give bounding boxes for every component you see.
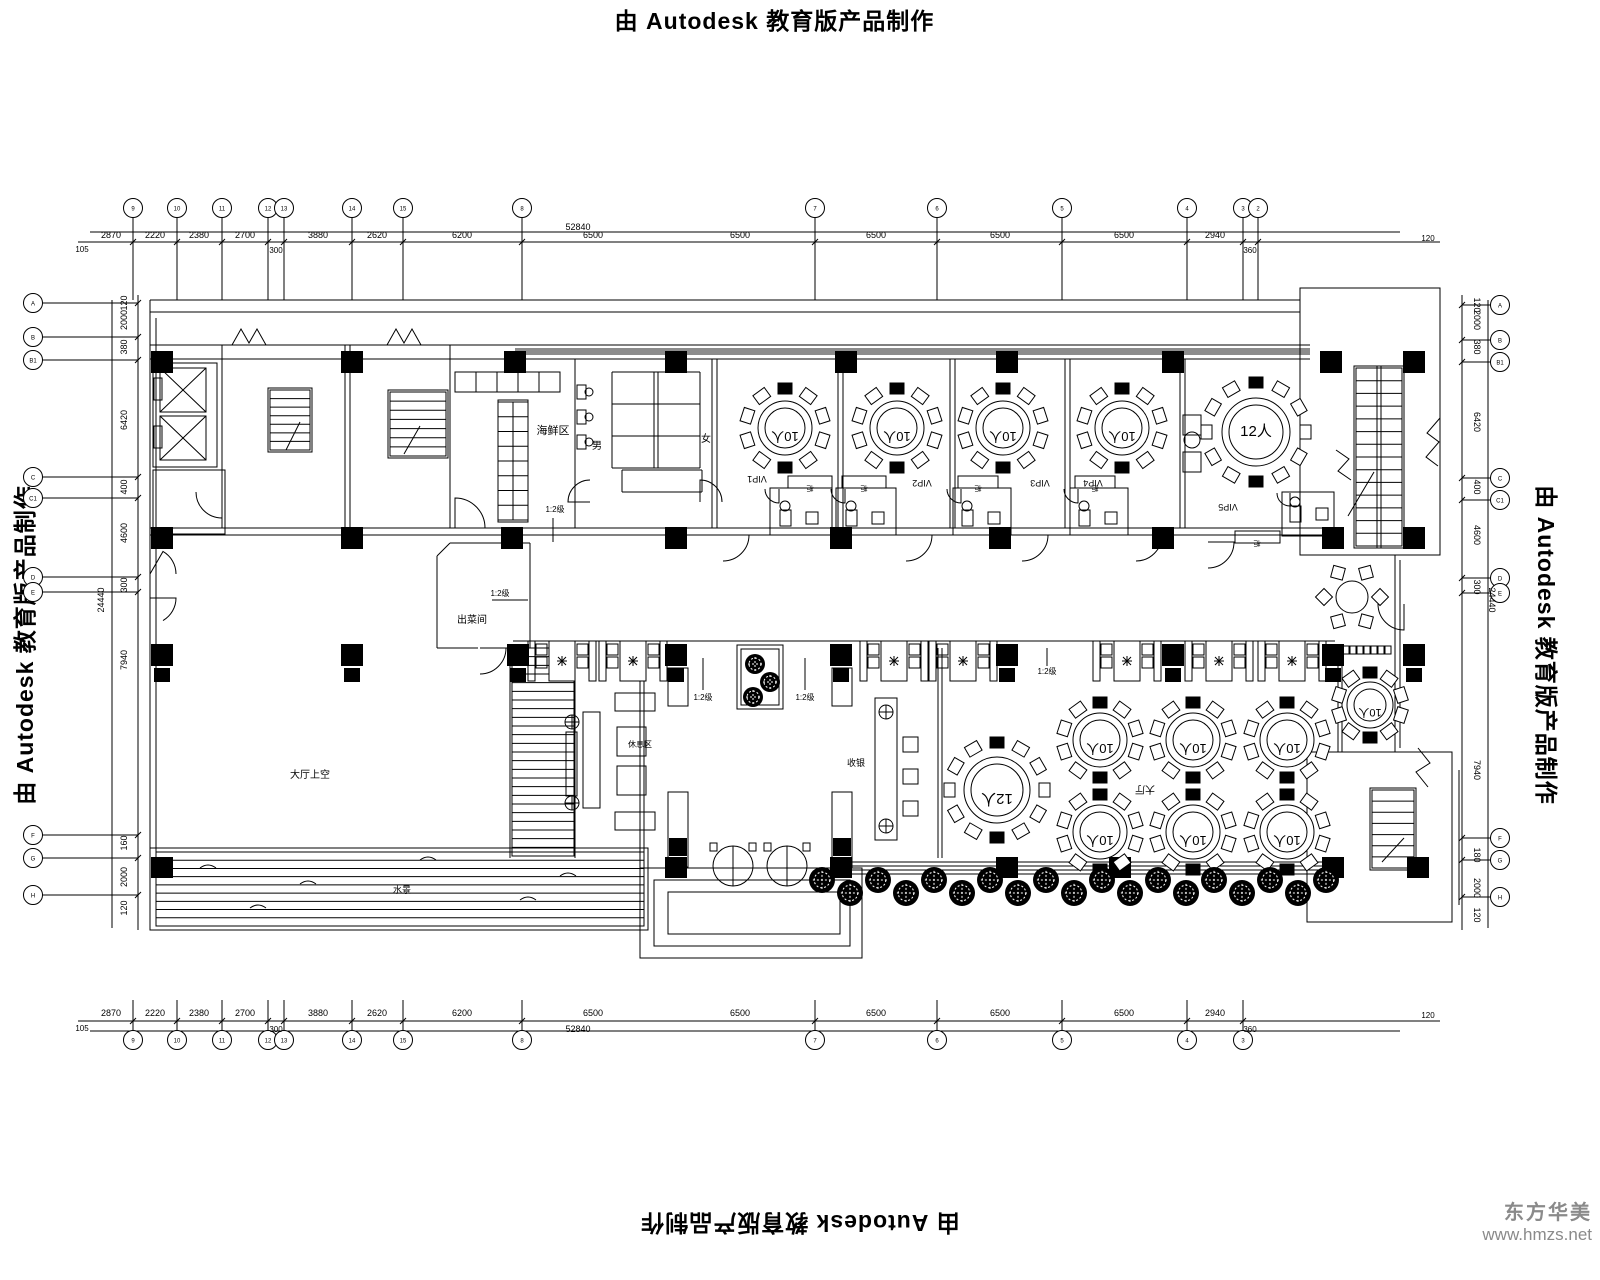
svg-text:C1: C1 xyxy=(29,497,37,503)
plant-symbol xyxy=(1089,867,1115,893)
svg-text:B: B xyxy=(31,336,35,342)
svg-text:105: 105 xyxy=(75,245,89,254)
svg-text:2380: 2380 xyxy=(189,1008,209,1018)
svg-text:柜: 柜 xyxy=(975,484,982,493)
svg-text:B1: B1 xyxy=(29,359,37,365)
svg-text:11: 11 xyxy=(219,207,226,213)
svg-text:120: 120 xyxy=(1421,234,1435,243)
svg-text:1:2级: 1:2级 xyxy=(545,504,564,514)
svg-text:A: A xyxy=(1498,304,1502,310)
svg-text:400: 400 xyxy=(1472,479,1482,494)
svg-text:2000: 2000 xyxy=(119,310,129,330)
svg-text:10人: 10人 xyxy=(1179,741,1206,756)
svg-text:H: H xyxy=(1498,896,1502,902)
svg-text:12: 12 xyxy=(265,207,272,213)
svg-text:大厅上空: 大厅上空 xyxy=(290,768,330,781)
svg-text:收银: 收银 xyxy=(847,757,865,768)
round-table: 12人 xyxy=(1201,377,1311,487)
svg-text:F: F xyxy=(31,834,35,840)
svg-text:10人: 10人 xyxy=(1086,741,1113,756)
svg-text:D: D xyxy=(1498,577,1503,583)
svg-text:海鲜区: 海鲜区 xyxy=(537,423,570,437)
svg-text:10人: 10人 xyxy=(883,429,910,444)
svg-text:300: 300 xyxy=(269,246,283,255)
plant-symbol xyxy=(865,867,891,893)
svg-text:6500: 6500 xyxy=(1114,1008,1134,1018)
svg-text:10人: 10人 xyxy=(1358,706,1381,719)
svg-text:3880: 3880 xyxy=(308,230,328,240)
svg-text:6500: 6500 xyxy=(866,230,886,240)
svg-text:柜: 柜 xyxy=(1092,484,1099,493)
svg-text:2870: 2870 xyxy=(101,1008,121,1018)
plant-symbol xyxy=(1313,867,1339,893)
svg-text:14: 14 xyxy=(349,207,356,213)
svg-text:13: 13 xyxy=(281,1039,288,1045)
svg-text:12: 12 xyxy=(265,1039,272,1045)
svg-text:1:2级: 1:2级 xyxy=(490,588,509,598)
svg-text:13: 13 xyxy=(281,207,288,213)
svg-text:VIP5: VIP5 xyxy=(1218,502,1238,512)
svg-text:G: G xyxy=(31,857,36,863)
svg-text:10人: 10人 xyxy=(1273,741,1300,756)
svg-text:G: G xyxy=(1498,859,1503,865)
svg-text:2000: 2000 xyxy=(119,867,129,887)
svg-text:6500: 6500 xyxy=(583,1008,603,1018)
svg-text:120: 120 xyxy=(1421,1011,1435,1020)
plant-symbol xyxy=(1285,880,1311,906)
svg-text:4600: 4600 xyxy=(1472,525,1482,545)
svg-text:180: 180 xyxy=(1472,847,1482,862)
svg-text:2000: 2000 xyxy=(1472,878,1482,898)
svg-text:4600: 4600 xyxy=(119,523,129,543)
svg-text:2220: 2220 xyxy=(145,230,165,240)
svg-text:6420: 6420 xyxy=(1472,412,1482,432)
svg-text:10人: 10人 xyxy=(771,429,798,444)
svg-text:15: 15 xyxy=(400,207,407,213)
svg-text:出菜间: 出菜间 xyxy=(457,613,487,626)
svg-text:15: 15 xyxy=(400,1039,407,1045)
svg-text:10人: 10人 xyxy=(1179,833,1206,848)
plant-symbol xyxy=(1173,880,1199,906)
svg-text:11: 11 xyxy=(219,1039,226,1045)
svg-text:B: B xyxy=(1498,339,1502,345)
round-table: 12人 xyxy=(944,737,1050,843)
plant-symbol xyxy=(745,654,765,674)
cad-floorplan-page: 由 Autodesk 教育版产品制作 由 Autodesk 教育版产品制作 由 … xyxy=(0,0,1600,1280)
svg-text:400: 400 xyxy=(119,479,129,494)
svg-text:2870: 2870 xyxy=(101,230,121,240)
svg-text:10人: 10人 xyxy=(1108,429,1135,444)
svg-text:120: 120 xyxy=(1472,907,1482,922)
svg-text:12人: 12人 xyxy=(1240,423,1272,440)
svg-text:6500: 6500 xyxy=(990,230,1010,240)
svg-text:水景: 水景 xyxy=(393,884,411,895)
svg-text:VIP1: VIP1 xyxy=(747,474,767,484)
svg-text:D: D xyxy=(31,576,36,582)
plant-symbol xyxy=(1201,867,1227,893)
svg-text:2000: 2000 xyxy=(1472,310,1482,330)
svg-text:6500: 6500 xyxy=(730,1008,750,1018)
plant-symbol xyxy=(921,867,947,893)
plant-symbol xyxy=(1257,867,1283,893)
svg-text:6500: 6500 xyxy=(990,1008,1010,1018)
svg-text:1:2级: 1:2级 xyxy=(1037,666,1056,676)
svg-text:2700: 2700 xyxy=(235,1008,255,1018)
round-table: 10人 xyxy=(852,383,942,473)
svg-text:12人: 12人 xyxy=(981,790,1013,807)
floor-plan-drawing: 海鲜区男女VIP1VIP2VIP3VIP4VIP5柜柜柜柜柜出菜间休息区收银大厅… xyxy=(0,0,1600,1280)
svg-text:10人: 10人 xyxy=(1086,833,1113,848)
round-table: 10人 xyxy=(1077,383,1167,473)
svg-text:24440: 24440 xyxy=(1487,587,1497,612)
plant-symbol xyxy=(949,880,975,906)
svg-text:10: 10 xyxy=(174,1039,181,1045)
svg-text:6500: 6500 xyxy=(1114,230,1134,240)
svg-text:10: 10 xyxy=(174,207,181,213)
svg-text:10人: 10人 xyxy=(1273,833,1300,848)
svg-text:C1: C1 xyxy=(1496,499,1504,505)
svg-text:男: 男 xyxy=(592,440,602,452)
svg-text:VIP3: VIP3 xyxy=(1030,478,1050,488)
svg-text:E: E xyxy=(1498,592,1502,598)
svg-text:E: E xyxy=(31,591,35,597)
svg-text:C: C xyxy=(1498,477,1503,483)
svg-text:6200: 6200 xyxy=(452,1008,472,1018)
dimension-frame: 9101112131415876543228702220238027003880… xyxy=(24,199,1510,1050)
svg-text:1:2级: 1:2级 xyxy=(795,692,814,702)
svg-text:160: 160 xyxy=(119,835,129,850)
svg-text:300: 300 xyxy=(269,1025,283,1034)
svg-text:2620: 2620 xyxy=(367,230,387,240)
svg-text:7940: 7940 xyxy=(119,650,129,670)
svg-text:C: C xyxy=(31,476,36,482)
plant-symbol xyxy=(1033,867,1059,893)
svg-text:女: 女 xyxy=(701,432,711,445)
svg-text:6500: 6500 xyxy=(730,230,750,240)
svg-text:6200: 6200 xyxy=(452,230,472,240)
svg-text:2380: 2380 xyxy=(189,230,209,240)
svg-text:360: 360 xyxy=(1243,1025,1257,1034)
round-table: 10人 xyxy=(740,383,830,473)
svg-text:2700: 2700 xyxy=(235,230,255,240)
svg-text:柜: 柜 xyxy=(861,484,868,493)
svg-text:7940: 7940 xyxy=(1472,760,1482,780)
svg-text:52840: 52840 xyxy=(565,222,590,232)
svg-text:2940: 2940 xyxy=(1205,1008,1225,1018)
round-table: 10人 xyxy=(1057,697,1143,783)
site-logo-name: 东方华美 xyxy=(1482,1202,1592,1225)
svg-text:6420: 6420 xyxy=(119,410,129,430)
plant-symbol xyxy=(760,672,780,692)
round-table: 10人 xyxy=(1150,697,1236,783)
svg-text:120: 120 xyxy=(119,900,129,915)
plant-symbol xyxy=(743,687,763,707)
plant-symbol xyxy=(837,880,863,906)
svg-text:F: F xyxy=(1498,837,1502,843)
plant-symbol xyxy=(977,867,1003,893)
svg-text:24440: 24440 xyxy=(96,587,106,612)
site-logo: 东方华美 www.hmzs.net xyxy=(1482,1202,1592,1245)
svg-text:360: 360 xyxy=(1243,246,1257,255)
plant-symbol xyxy=(1061,880,1087,906)
svg-text:380: 380 xyxy=(119,339,129,354)
svg-text:52840: 52840 xyxy=(565,1024,590,1034)
svg-text:120: 120 xyxy=(119,295,129,310)
plant-symbol xyxy=(809,867,835,893)
svg-text:300: 300 xyxy=(119,577,129,592)
svg-text:VIP2: VIP2 xyxy=(912,478,932,488)
svg-text:105: 105 xyxy=(75,1024,89,1033)
svg-text:10人: 10人 xyxy=(989,429,1016,444)
svg-text:休息区: 休息区 xyxy=(628,739,652,749)
site-logo-url: www.hmzs.net xyxy=(1482,1225,1592,1245)
svg-text:3880: 3880 xyxy=(308,1008,328,1018)
svg-text:300: 300 xyxy=(1472,579,1482,594)
round-table: 10人 xyxy=(958,383,1048,473)
svg-text:380: 380 xyxy=(1472,339,1482,354)
plant-symbol xyxy=(893,880,919,906)
dining-tables: 10人10人10人10人12人12人10人10人10人10人10人10人10人 xyxy=(740,377,1408,875)
svg-text:2220: 2220 xyxy=(145,1008,165,1018)
svg-text:大厅: 大厅 xyxy=(1135,783,1155,796)
svg-text:6500: 6500 xyxy=(866,1008,886,1018)
svg-text:A: A xyxy=(31,302,35,308)
svg-text:2940: 2940 xyxy=(1205,230,1225,240)
round-table: 10人 xyxy=(1244,697,1330,783)
svg-text:14: 14 xyxy=(349,1039,356,1045)
round-table: 10人 xyxy=(1332,667,1409,743)
plant-symbol xyxy=(1117,880,1143,906)
svg-text:柜: 柜 xyxy=(807,484,814,493)
plant-symbol xyxy=(1005,880,1031,906)
svg-text:2620: 2620 xyxy=(367,1008,387,1018)
plant-symbol xyxy=(1145,867,1171,893)
svg-text:B1: B1 xyxy=(1496,361,1504,367)
svg-text:1:2级: 1:2级 xyxy=(693,692,712,702)
svg-text:柜: 柜 xyxy=(1254,539,1261,548)
plant-symbol xyxy=(1229,880,1255,906)
svg-text:H: H xyxy=(31,894,35,900)
